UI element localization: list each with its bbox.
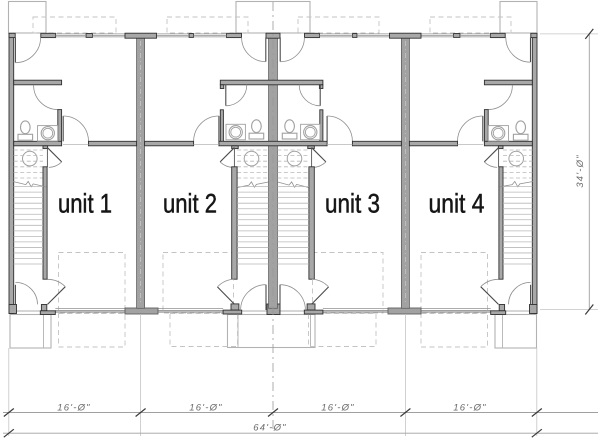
svg-text:16'-Ø": 16'-Ø" [453,403,487,414]
svg-text:unit 1: unit 1 [58,189,112,219]
svg-text:unit 4: unit 4 [429,189,485,219]
svg-text:unit 3: unit 3 [325,189,380,219]
svg-text:16'-Ø": 16'-Ø" [321,403,355,414]
svg-text:unit 2: unit 2 [163,189,217,219]
svg-text:34'-Ø": 34'-Ø" [575,154,586,188]
svg-text:64'-Ø": 64'-Ø" [253,423,287,434]
svg-text:16'-Ø": 16'-Ø" [189,403,223,414]
svg-text:16'-Ø": 16'-Ø" [57,403,91,414]
